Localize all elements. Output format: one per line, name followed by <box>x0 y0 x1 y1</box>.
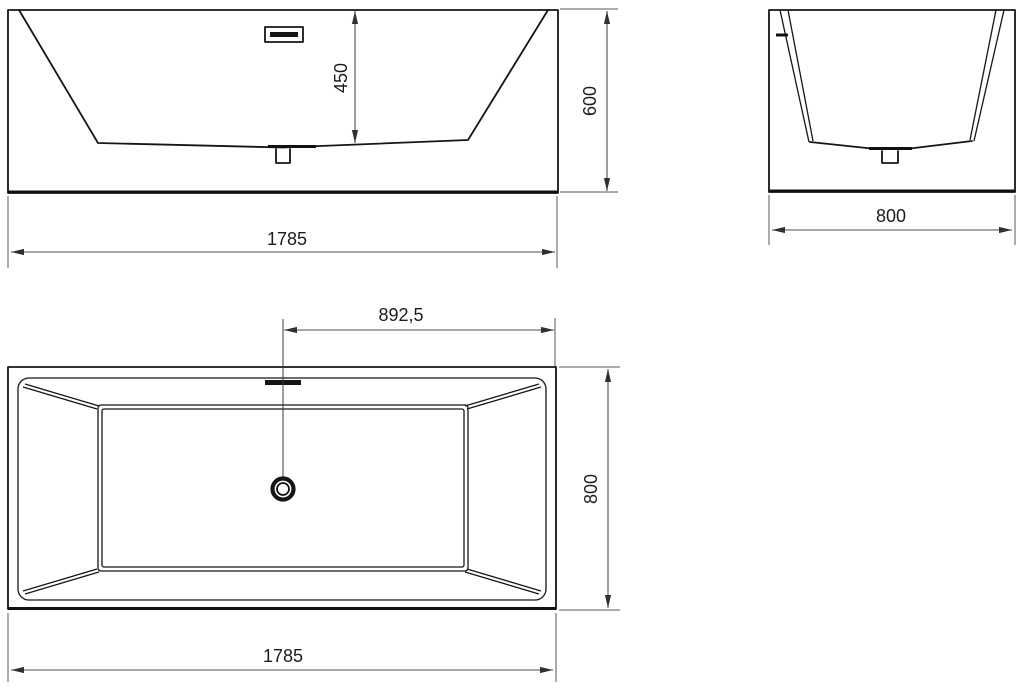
top-drain-icon <box>273 479 294 500</box>
technical-drawing-page: 450 600 1785 <box>0 0 1024 691</box>
top-drain-offset-label: 892,5 <box>378 305 423 325</box>
drawing-canvas: 450 600 1785 <box>0 0 1024 691</box>
top-view: 892,5 800 1785 <box>8 305 620 682</box>
dimension-top-depth: 800 <box>559 367 620 610</box>
top-depth-label: 800 <box>581 474 601 504</box>
dimension-front-width: 1785 <box>8 196 557 268</box>
front-view: 450 600 1785 <box>8 9 618 268</box>
front-width-label: 1785 <box>267 229 307 249</box>
front-height-label: 600 <box>580 86 600 116</box>
side-right-wall-inner <box>970 10 996 140</box>
dimension-front-height: 600 <box>560 9 618 192</box>
front-basin-profile <box>19 10 548 148</box>
top-width-label: 1785 <box>263 646 303 666</box>
side-right-wall-outer <box>974 10 1004 141</box>
dimension-top-drain-offset: 892,5 <box>284 305 555 366</box>
front-outer-body <box>8 10 558 193</box>
front-drain-outlet <box>276 149 290 163</box>
front-depth-label: 450 <box>331 63 351 93</box>
dimension-side-width: 800 <box>769 195 1015 245</box>
dimension-top-width: 1785 <box>8 613 556 682</box>
side-width-label: 800 <box>876 206 906 226</box>
dimension-front-depth: 450 <box>331 11 355 143</box>
side-view: 800 <box>769 10 1015 245</box>
side-drain-outlet <box>882 151 898 163</box>
side-left-wall-inner <box>788 10 813 141</box>
side-left-wall-outer <box>780 10 809 142</box>
front-overflow-icon <box>265 27 303 42</box>
